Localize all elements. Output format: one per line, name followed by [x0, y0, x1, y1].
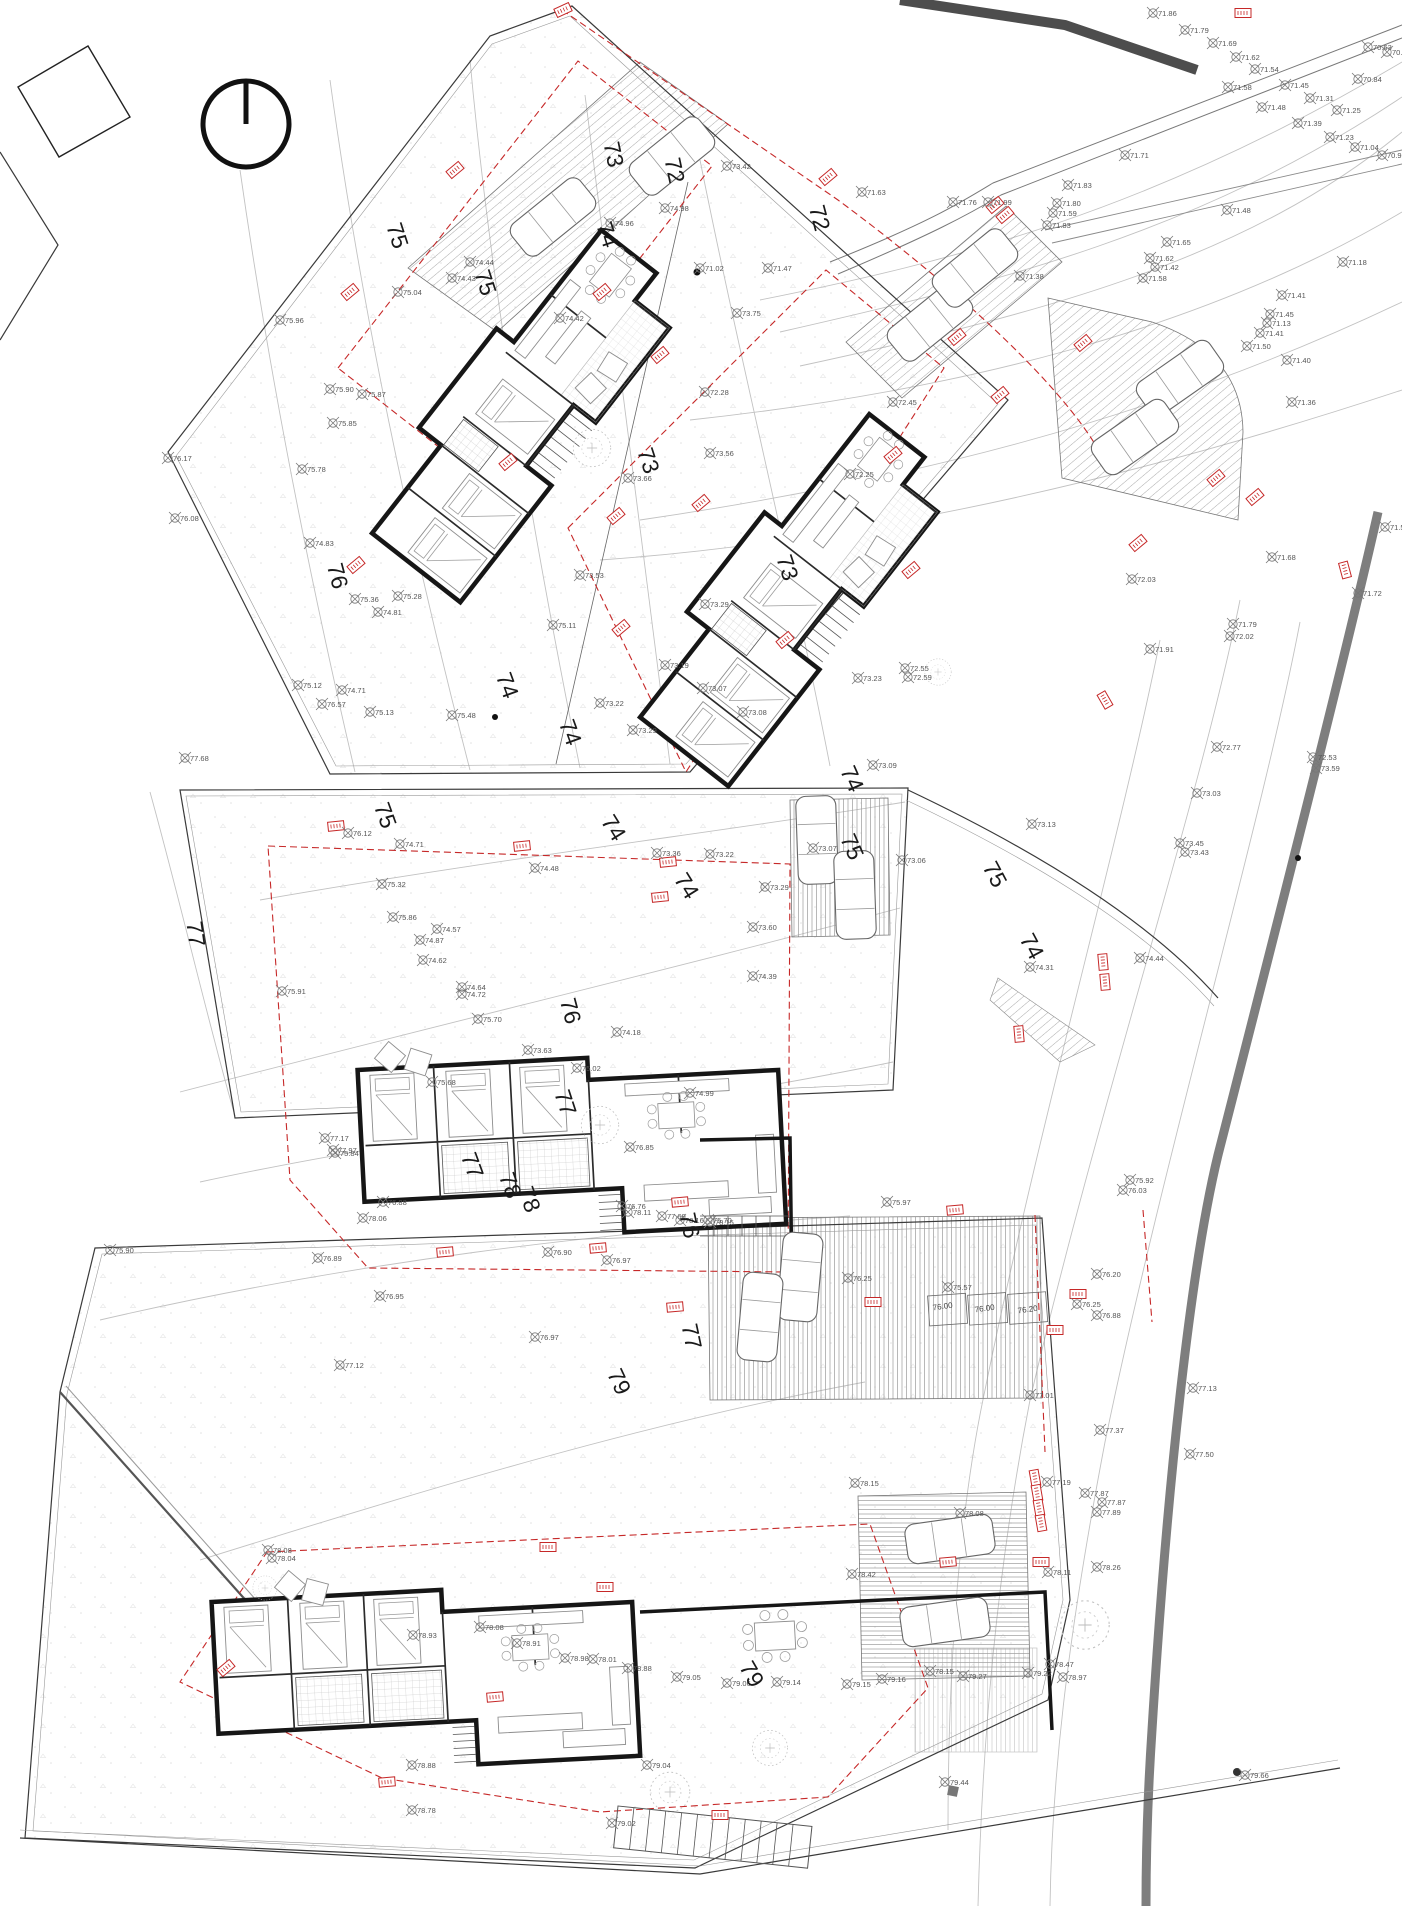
survey-point: 71.31	[1304, 92, 1334, 104]
survey-point-elevation: 73.06	[907, 856, 926, 865]
survey-point-elevation: 77.12	[345, 1361, 364, 1370]
boundary-square	[18, 46, 130, 157]
survey-point: 76.20	[1091, 1268, 1121, 1280]
survey-point-elevation: 75.70	[483, 1015, 502, 1024]
survey-point-elevation: 71.80	[1062, 199, 1081, 208]
survey-point: 71.59	[1047, 207, 1077, 219]
survey-point-elevation: 75.86	[398, 913, 417, 922]
red-tag	[590, 1243, 607, 1253]
contour-label: 73	[598, 139, 629, 169]
survey-point-elevation: 78.04	[277, 1554, 296, 1563]
survey-point-elevation: 77.50	[1195, 1450, 1214, 1459]
survey-point-elevation: 73.45	[1185, 839, 1204, 848]
survey-point-elevation: 75.92	[1135, 1176, 1154, 1185]
survey-point-elevation: 77.17	[330, 1134, 349, 1143]
survey-point-elevation: 73.56	[715, 449, 734, 458]
survey-point-elevation: 76.95	[385, 1292, 404, 1301]
contour-label: 77	[181, 919, 210, 948]
survey-point-elevation: 75.96	[285, 316, 304, 325]
survey-point-elevation: 78.08	[965, 1509, 984, 1518]
survey-point: 72.03	[1126, 573, 1156, 585]
survey-point-elevation: 78.06	[368, 1214, 387, 1223]
red-tag	[379, 1777, 396, 1787]
survey-point-elevation: 73.22	[715, 850, 734, 859]
survey-point: 71.80	[1051, 197, 1081, 209]
car-icon	[833, 850, 876, 939]
survey-point-elevation: 71.62	[1241, 53, 1260, 62]
survey-point: 71.41	[1276, 289, 1306, 301]
survey-point-elevation: 77.87	[1107, 1498, 1126, 1507]
survey-point-elevation: 71.45	[1290, 81, 1309, 90]
car-icon	[795, 795, 838, 884]
survey-point-elevation: 74.42	[565, 314, 584, 323]
survey-point: 71.65	[1161, 236, 1191, 248]
survey-point: 77.68	[179, 752, 209, 764]
red-tag	[1014, 1026, 1024, 1043]
survey-point: 71.69	[1207, 37, 1237, 49]
survey-point-elevation: 74.81	[383, 608, 402, 617]
survey-point-elevation: 76.89	[323, 1254, 342, 1263]
survey-point-elevation: 75.11	[558, 621, 576, 630]
survey-point-elevation: 71.50	[1252, 342, 1271, 351]
survey-point-elevation: 77.13	[1198, 1384, 1217, 1393]
contour-label: 77	[676, 1321, 707, 1351]
survey-point: 71.50	[1241, 340, 1271, 352]
survey-point: 71.36	[1286, 396, 1316, 408]
survey-point-elevation: 78.47	[1055, 1660, 1074, 1669]
survey-point-elevation: 71.79	[1190, 26, 1209, 35]
survey-point: 78.97	[1057, 1671, 1087, 1683]
survey-point-elevation: 71.83	[1052, 221, 1071, 230]
survey-point-elevation: 70.58	[1392, 48, 1402, 57]
survey-point-elevation: 74.71	[347, 686, 366, 695]
survey-point-elevation: 77.19	[1052, 1478, 1071, 1487]
survey-point: 73.13	[1026, 818, 1056, 830]
survey-point-elevation: 75.90	[115, 1246, 134, 1255]
survey-point-elevation: 79.04	[652, 1761, 671, 1770]
survey-point-elevation: 78.78	[417, 1806, 436, 1815]
red-tag	[947, 1205, 964, 1215]
survey-point: 79.66	[1239, 1769, 1269, 1781]
survey-point-elevation: 71.13	[1272, 319, 1291, 328]
survey-point-elevation: 71.55	[1390, 523, 1402, 532]
survey-point: 73.43	[1179, 846, 1209, 858]
survey-point-elevation: 71.69	[1218, 39, 1237, 48]
survey-point-elevation: 79.02	[617, 1819, 636, 1828]
survey-point-elevation: 76.88	[1102, 1311, 1121, 1320]
survey-point: 71.58	[1137, 272, 1167, 284]
survey-point-elevation: 76.08	[180, 514, 199, 523]
survey-point-elevation: 71.48	[1232, 206, 1251, 215]
survey-point: 77.89	[1091, 1506, 1121, 1518]
red-tag	[328, 821, 345, 832]
survey-point-elevation: 78.11	[633, 1208, 651, 1217]
survey-point-elevation: 71.36	[1297, 398, 1316, 407]
survey-point-elevation: 73.09	[878, 761, 897, 770]
survey-point-elevation: 73.59	[1321, 764, 1340, 773]
survey-point-elevation: 76.97	[540, 1333, 559, 1342]
red-tag	[1097, 691, 1113, 709]
red-tag	[1339, 561, 1352, 579]
survey-point-elevation: 79.05	[682, 1673, 701, 1682]
survey-point-elevation: 74.18	[622, 1028, 641, 1037]
survey-point: 71.79	[1179, 24, 1209, 36]
survey-point-elevation: 79.44	[950, 1778, 969, 1787]
survey-point: 77.87	[1096, 1496, 1126, 1508]
survey-point: 76.88	[1091, 1309, 1121, 1321]
survey-point-elevation: 78.42	[857, 1570, 876, 1579]
benchmark-dot	[1233, 1768, 1241, 1776]
survey-point: 71.41	[1254, 327, 1284, 339]
survey-point-elevation: 71.23	[1335, 133, 1354, 142]
survey-point-elevation: 71.79	[1238, 620, 1257, 629]
survey-point: 71.83	[1062, 179, 1092, 191]
survey-point-elevation: 75.28	[403, 592, 422, 601]
survey-point-elevation: 72.53	[1318, 753, 1337, 762]
survey-point-elevation: 71.86	[1158, 9, 1177, 18]
survey-point: 71.79	[1227, 618, 1257, 630]
survey-point-elevation: 71.99	[993, 198, 1012, 207]
survey-point-elevation: 78.15	[715, 1218, 734, 1227]
survey-point: 71.58	[1222, 81, 1252, 93]
red-tag	[1033, 1558, 1049, 1567]
survey-point-elevation: 74.72	[467, 990, 486, 999]
survey-point-elevation: 71.68	[1277, 553, 1296, 562]
survey-point-elevation: 71.62	[1155, 254, 1174, 263]
survey-point-elevation: 75.87	[367, 390, 386, 399]
survey-point-elevation: 75.85	[338, 419, 357, 428]
red-tag	[487, 1692, 504, 1702]
survey-point-elevation: 71.42	[1160, 263, 1179, 272]
road-right	[1146, 512, 1378, 1906]
survey-point: 71.99	[982, 196, 1012, 208]
survey-point: 73.03	[1191, 787, 1221, 799]
survey-point-elevation: 75.68	[437, 1078, 456, 1087]
survey-point-elevation: 71.04	[1360, 143, 1379, 152]
survey-point: 77.50	[1184, 1448, 1214, 1460]
survey-point-elevation: 74.44	[475, 258, 494, 267]
survey-point: 71.48	[1221, 204, 1251, 216]
survey-point-elevation: 73.75	[742, 309, 761, 318]
survey-point: 70.84	[1352, 73, 1382, 85]
survey-point-elevation: 74.48	[540, 864, 559, 873]
survey-point-elevation: 72.77	[1222, 743, 1241, 752]
red-tag	[1235, 9, 1251, 18]
survey-point-elevation: 74.87	[425, 936, 444, 945]
survey-point-elevation: 75.12	[303, 681, 322, 690]
survey-point-elevation: 74.57	[442, 925, 461, 934]
red-tag	[902, 561, 920, 578]
survey-point-elevation: 74.71	[405, 840, 424, 849]
survey-point: 77.87	[1079, 1487, 1109, 1499]
survey-point-elevation: 73.43	[1190, 848, 1209, 857]
survey-point-elevation: 75.32	[387, 880, 406, 889]
survey-point-elevation: 79.16	[887, 1675, 906, 1684]
survey-point-elevation: 71.31	[1315, 94, 1334, 103]
red-tag	[514, 841, 531, 852]
survey-point-elevation: 73.63	[533, 1046, 552, 1055]
survey-point-elevation: 71.54	[1260, 65, 1279, 74]
survey-point-elevation: 75.13	[375, 708, 394, 717]
survey-point: 71.25	[1331, 104, 1361, 116]
car-icon	[776, 1231, 824, 1322]
survey-point-elevation: 78.88	[417, 1761, 436, 1770]
survey-point-elevation: 74.31	[1035, 963, 1054, 972]
survey-point-elevation: 73.29	[638, 726, 657, 735]
survey-point-elevation: 73.23	[863, 674, 882, 683]
benchmark-dot	[492, 714, 498, 720]
survey-point: 72.02	[1224, 630, 1254, 642]
survey-point: 71.76	[947, 196, 977, 208]
site-plan-drawing: 71.8671.7971.6971.6271.5471.4571.3171.25…	[0, 0, 1402, 1906]
survey-point-elevation: 78.97	[1068, 1673, 1087, 1682]
survey-point-elevation: 71.02	[705, 264, 724, 273]
survey-point: 72.77	[1211, 741, 1241, 753]
survey-point-elevation: 75.02	[582, 1064, 601, 1073]
survey-point: 71.71	[1119, 149, 1149, 161]
survey-point-elevation: 76.88	[388, 1198, 407, 1207]
survey-point: 76.03	[1117, 1184, 1147, 1196]
survey-point: 77.37	[1094, 1424, 1124, 1436]
survey-point: 71.39	[1292, 117, 1322, 129]
survey-point-elevation: 71.18	[1348, 258, 1367, 267]
survey-point-elevation: 79.15	[852, 1680, 871, 1689]
survey-point-elevation: 76.90	[553, 1248, 572, 1257]
survey-point: 71.91	[1144, 643, 1174, 655]
survey-point-elevation: 73.53	[585, 571, 604, 580]
survey-point-elevation: 78.08	[485, 1623, 504, 1632]
survey-point-elevation: 77.37	[1105, 1426, 1124, 1435]
contour-label: 75	[978, 857, 1013, 892]
survey-point-elevation: 77.89	[1102, 1508, 1121, 1517]
benchmark-dot	[1295, 855, 1301, 861]
survey-point-elevation: 70.93	[1387, 151, 1402, 160]
red-tag	[667, 1302, 684, 1312]
survey-point-elevation: 78.11	[1053, 1568, 1071, 1577]
survey-point-elevation: 78.15	[935, 1667, 954, 1676]
survey-point: 76.17	[162, 452, 192, 464]
survey-point-elevation: 71.58	[1233, 83, 1252, 92]
survey-point-elevation: 78.93	[418, 1631, 437, 1640]
survey-point-elevation: 74.98	[670, 204, 689, 213]
red-tag	[819, 168, 837, 185]
survey-point-elevation: 79.66	[1250, 1771, 1269, 1780]
survey-point: 78.06	[357, 1212, 387, 1224]
survey-point-elevation: 71.63	[867, 188, 886, 197]
survey-point: 76.25	[1071, 1298, 1101, 1310]
red-tag	[1070, 1290, 1086, 1299]
survey-point-elevation: 76.57	[327, 700, 346, 709]
survey-point-elevation: 75.48	[457, 711, 476, 720]
survey-point: 74.44	[1134, 952, 1164, 964]
survey-point: 73.09	[867, 759, 897, 771]
survey-point-elevation: 78.01	[598, 1655, 617, 1664]
survey-point: 77.17	[319, 1132, 349, 1144]
survey-point: 71.48	[1256, 101, 1286, 113]
survey-point-elevation: 75.97	[892, 1198, 911, 1207]
survey-point-elevation: 75.90	[335, 385, 354, 394]
survey-point-elevation: 73.36	[662, 849, 681, 858]
survey-point-elevation: 71.38	[1025, 272, 1044, 281]
survey-point-elevation: 73.60	[758, 923, 777, 932]
survey-point-elevation: 74.83	[315, 539, 334, 548]
survey-point-elevation: 77.87	[1090, 1489, 1109, 1498]
survey-point-elevation: 74.62	[428, 956, 447, 965]
red-tag	[1129, 534, 1147, 551]
survey-point-elevation: 79.14	[782, 1678, 801, 1687]
survey-point-elevation: 71.91	[1155, 645, 1174, 654]
red-tag	[597, 1583, 613, 1592]
site-plan-sheet: 71.8671.7971.6971.6271.5471.4571.3171.25…	[0, 0, 1402, 1906]
red-tag	[712, 1811, 728, 1820]
survey-point: 71.04	[1349, 141, 1379, 153]
survey-point-elevation: 71.65	[1172, 238, 1191, 247]
survey-point-elevation: 76.85	[635, 1143, 654, 1152]
survey-point: 72.59	[902, 671, 932, 683]
survey-point-elevation: 71.59	[1058, 209, 1077, 218]
survey-point-elevation: 72.45	[898, 398, 917, 407]
red-tag	[1047, 1326, 1063, 1335]
survey-point: 71.86	[1147, 7, 1177, 19]
survey-point-elevation: 78.98	[570, 1654, 589, 1663]
survey-point: 71.63	[856, 186, 886, 198]
survey-point: 71.42	[1149, 261, 1179, 273]
red-tag	[865, 1298, 881, 1307]
survey-point: 79.44	[939, 1776, 969, 1788]
survey-point-elevation: 73.19	[670, 661, 689, 670]
road-top-segment	[900, 0, 1197, 70]
survey-point: 71.40	[1281, 354, 1311, 366]
survey-point: 71.83	[1041, 219, 1071, 231]
survey-point-elevation: 73.13	[1037, 820, 1056, 829]
survey-point-elevation: 72.02	[1235, 632, 1254, 641]
survey-point-elevation: 71.48	[1267, 103, 1286, 112]
survey-point-elevation: 71.72	[1363, 589, 1382, 598]
survey-point-elevation: 70.84	[1363, 75, 1382, 84]
survey-point-elevation: 76.12	[353, 829, 372, 838]
survey-point-elevation: 72.25	[855, 470, 874, 479]
survey-point-elevation: 79.22	[1033, 1669, 1052, 1678]
survey-point: 75.97	[881, 1196, 911, 1208]
survey-point-elevation: 73.22	[605, 699, 624, 708]
survey-point-elevation: 73.07	[708, 684, 727, 693]
survey-point-elevation: 74.39	[758, 972, 777, 981]
survey-point-elevation: 73.03	[1202, 789, 1221, 798]
survey-point-elevation: 71.76	[958, 198, 977, 207]
survey-point-elevation: 79.27	[968, 1672, 987, 1681]
red-tag	[672, 1197, 689, 1207]
survey-point-elevation: 74.99	[695, 1089, 714, 1098]
survey-point-elevation: 73.42	[732, 162, 751, 171]
contour-label: 74	[1015, 929, 1050, 964]
survey-point-elevation: 71.45	[1275, 310, 1294, 319]
survey-point: 71.45	[1279, 79, 1309, 91]
survey-point-elevation: 71.58	[1148, 274, 1167, 283]
survey-point-elevation: 75.04	[403, 288, 422, 297]
survey-point-elevation: 75.91	[287, 987, 306, 996]
survey-point-elevation: 78.88	[633, 1664, 652, 1673]
red-tag	[1246, 488, 1264, 505]
survey-point: 74.31	[1024, 961, 1054, 973]
survey-point-elevation: 71.40	[1292, 356, 1311, 365]
red-tag	[652, 892, 669, 903]
survey-point-elevation: 78.91	[522, 1639, 541, 1648]
survey-point-elevation: 78.15	[860, 1479, 879, 1488]
survey-point-elevation: 72.03	[1137, 575, 1156, 584]
survey-point: 78.26	[1091, 1561, 1121, 1573]
survey-point-elevation: 76.17	[173, 454, 192, 463]
red-tag	[1098, 954, 1108, 971]
survey-point-elevation: 76.25	[1082, 1300, 1101, 1309]
survey-point-elevation: 73.29	[710, 600, 729, 609]
north-arrow-icon	[203, 81, 289, 167]
survey-point: 71.55	[1379, 521, 1402, 533]
red-tag	[940, 1557, 957, 1567]
red-tag	[540, 1543, 556, 1552]
survey-point-elevation: 76.03	[1128, 1186, 1147, 1195]
survey-point-elevation: 71.47	[773, 264, 792, 273]
survey-point: 71.18	[1337, 256, 1367, 268]
survey-point-elevation: 73.07	[818, 844, 837, 853]
survey-point-elevation: 77.97	[338, 1146, 357, 1155]
survey-point-elevation: 74.44	[1145, 954, 1164, 963]
survey-point: 71.62	[1230, 51, 1260, 63]
survey-point-elevation: 76.25	[853, 1274, 872, 1283]
survey-point-elevation: 76.20	[1102, 1270, 1121, 1279]
red-tag	[1100, 974, 1110, 991]
survey-point: 73.23	[852, 672, 882, 684]
survey-point-elevation: 77.01	[1035, 1391, 1054, 1400]
survey-point-elevation: 71.41	[1287, 291, 1306, 300]
survey-point: 72.53	[1307, 751, 1337, 763]
survey-point-elevation: 75.78	[307, 465, 326, 474]
survey-point-elevation: 75.57	[953, 1283, 972, 1292]
car-icon	[736, 1271, 784, 1362]
survey-point-elevation: 71.83	[1073, 181, 1092, 190]
survey-point-elevation: 75.36	[360, 595, 379, 604]
survey-point-elevation: 77.68	[190, 754, 209, 763]
survey-point: 76.08	[169, 512, 199, 524]
survey-point-elevation: 76.97	[612, 1256, 631, 1265]
contour-label: 72	[659, 155, 690, 185]
survey-point: 71.68	[1266, 551, 1296, 563]
survey-point-elevation: 78.26	[1102, 1563, 1121, 1572]
survey-point: 71.54	[1249, 63, 1279, 75]
survey-point-elevation: 71.71	[1130, 151, 1149, 160]
survey-point: 77.13	[1187, 1382, 1217, 1394]
contour-label: 76	[674, 1210, 705, 1240]
survey-point-elevation: 71.41	[1265, 329, 1284, 338]
red-tag	[437, 1247, 454, 1257]
survey-point-elevation: 73.08	[748, 708, 767, 717]
survey-point-elevation: 72.59	[913, 673, 932, 682]
survey-point-elevation: 72.28	[710, 388, 729, 397]
survey-point-elevation: 71.25	[1342, 106, 1361, 115]
survey-point-elevation: 71.39	[1303, 119, 1322, 128]
survey-point-elevation: 73.29	[770, 883, 789, 892]
